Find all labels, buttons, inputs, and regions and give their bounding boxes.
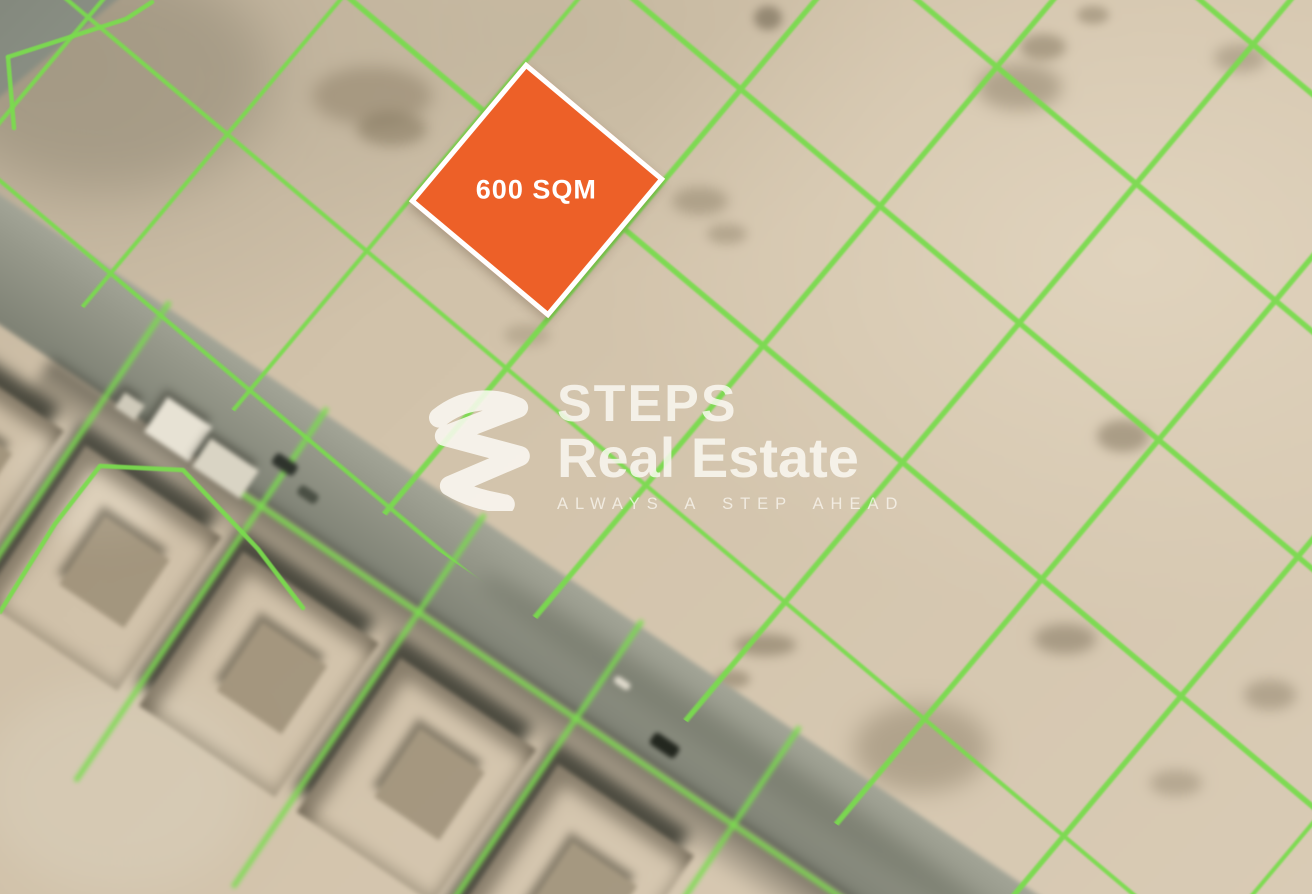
steps-watermark: STEPS Real Estate ALWAYS A STEP AHEAD	[413, 381, 904, 514]
steps-logo-mark-icon	[413, 381, 545, 511]
watermark-text: STEPS Real Estate ALWAYS A STEP AHEAD	[557, 381, 904, 514]
brand-name-top: STEPS	[557, 381, 904, 428]
brand-name-bottom: Real Estate	[557, 430, 904, 486]
brand-tagline: ALWAYS A STEP AHEAD	[557, 495, 904, 514]
plot-boundary-line	[8, 57, 14, 128]
plot-boundary-line	[8, 2, 152, 57]
plot-area-label: 600 SQM	[476, 175, 597, 206]
satellite-plot-map: 600 SQM STEPS Real Estate ALWAYS A STEP …	[0, 0, 1312, 894]
plot-boundary-line	[0, 466, 303, 612]
